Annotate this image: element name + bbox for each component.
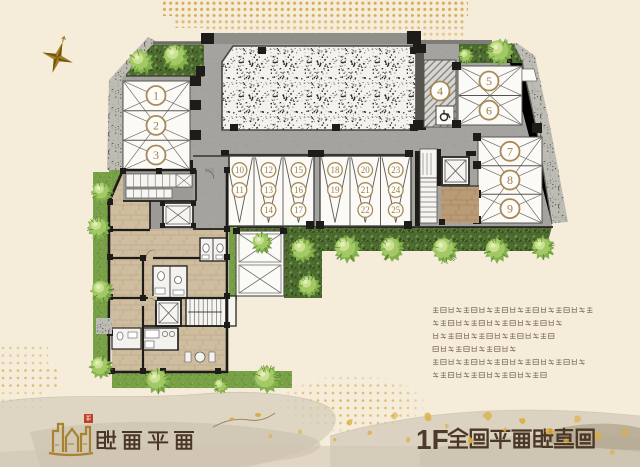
svg-text:14: 14 xyxy=(264,205,274,215)
svg-text:16: 16 xyxy=(294,185,304,195)
svg-text:24: 24 xyxy=(391,185,401,195)
svg-text:15: 15 xyxy=(294,165,304,175)
svg-text:22: 22 xyxy=(361,205,370,215)
svg-text:18: 18 xyxy=(331,165,341,175)
svg-text:10: 10 xyxy=(235,165,245,175)
svg-text:20: 20 xyxy=(361,165,371,175)
svg-text:25: 25 xyxy=(391,205,401,215)
svg-text:23: 23 xyxy=(391,165,401,175)
svg-text:2: 2 xyxy=(153,118,159,132)
svg-text:17: 17 xyxy=(294,205,304,215)
svg-text:7: 7 xyxy=(507,144,513,158)
svg-text:4: 4 xyxy=(437,84,443,98)
svg-text:8: 8 xyxy=(507,173,513,187)
svg-text:12: 12 xyxy=(264,165,273,175)
svg-text:1F: 1F xyxy=(416,424,449,455)
svg-text:3: 3 xyxy=(153,148,159,162)
svg-text:1: 1 xyxy=(153,89,159,103)
svg-text:13: 13 xyxy=(264,185,274,195)
svg-text:9: 9 xyxy=(507,202,513,216)
svg-text:5: 5 xyxy=(486,74,492,88)
svg-text:19: 19 xyxy=(331,185,341,195)
svg-text:11: 11 xyxy=(235,185,244,195)
svg-text:21: 21 xyxy=(361,185,370,195)
svg-text:6: 6 xyxy=(486,103,492,117)
